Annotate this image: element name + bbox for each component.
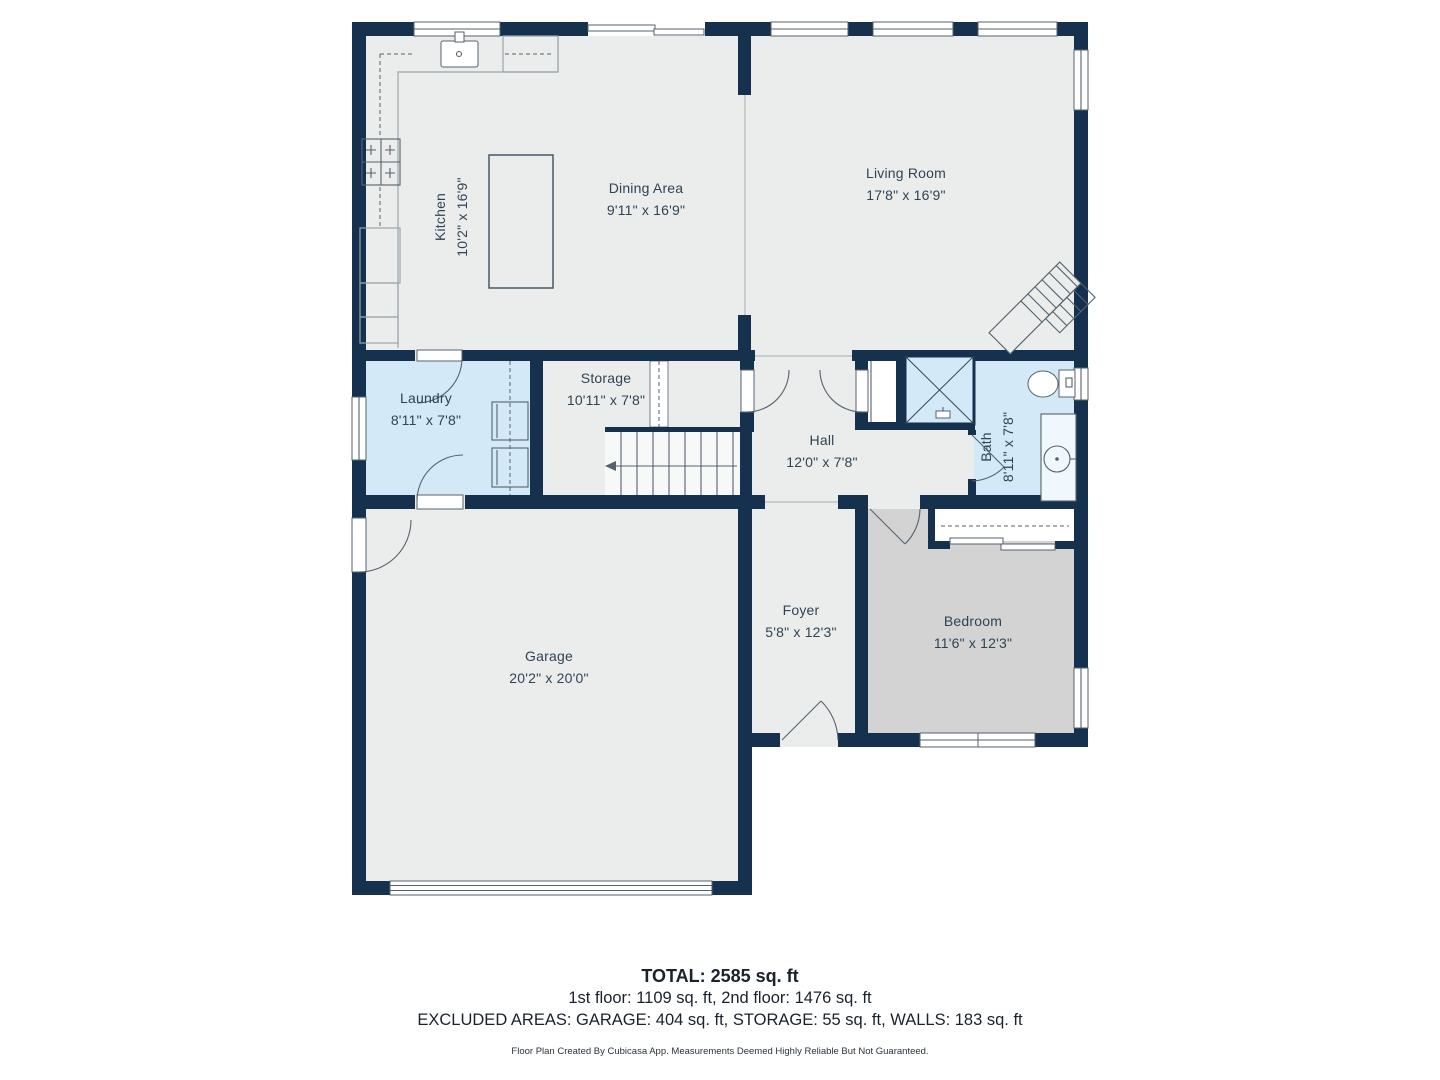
room-dims: 10'11" x 7'8" [567,389,645,411]
room-dims: 10'2" x 16'9" [451,177,473,256]
room-dims: 5'8" x 12'3" [765,621,836,643]
room-label-foyer: Foyer 5'8" x 12'3" [765,599,836,643]
room-name: Foyer [765,599,836,621]
floor-plan-drawing [0,0,1440,1080]
bedroom-closet-floor [935,509,1074,541]
room-name: Storage [567,367,645,389]
room-label-bath: Bath 8'11" x 7'8" [975,412,1019,482]
room-label-kitchen: Kitchen 10'2" x 16'9" [429,177,473,256]
room-dims: 8'11" x 7'8" [391,409,461,431]
window-icon [1074,50,1088,110]
garage-door-icon [390,881,712,895]
room-name: Bedroom [934,610,1012,632]
disclaimer-text: Floor Plan Created By Cubicasa App. Meas… [0,1046,1440,1057]
window-icon [978,22,1057,36]
room-name: Laundry [391,387,461,409]
room-dims: 12'0" x 7'8" [786,451,857,473]
window-icon [920,733,978,747]
room-name: Hall [786,429,857,451]
stair-top-edge [605,427,748,432]
window-icon [1074,368,1088,400]
room-dims: 9'11" x 16'9" [607,199,685,221]
room-label-storage: Storage 10'11" x 7'8" [567,367,645,411]
shower-icon [905,356,974,424]
room-dims: 17'8" x 16'9" [866,184,946,206]
window-icon [771,22,848,36]
stairs-floor [605,432,748,495]
room-name: Living Room [866,162,946,184]
window-icon [978,733,1035,747]
room-label-dining-area: Dining Area 9'11" x 16'9" [607,177,685,221]
room-label-garage: Garage 20'2" x 20'0" [509,645,588,689]
dining-living-divider [738,22,751,95]
floor-plan-page: Kitchen 10'2" x 16'9" Dining Area 9'11" … [0,0,1440,1080]
room-dims: 11'6" x 12'3" [934,632,1012,654]
window-icon [352,397,366,460]
room-dims: 8'11" x 7'8" [997,412,1019,482]
room-name: Dining Area [607,177,685,199]
room-label-living-room: Living Room 17'8" x 16'9" [866,162,946,206]
room-dims: 20'2" x 20'0" [509,667,588,689]
room-label-laundry: Laundry 8'11" x 7'8" [391,387,461,431]
summary-total: TOTAL: 2585 sq. ft [0,966,1440,987]
summary-floors: 1st floor: 1109 sq. ft, 2nd floor: 1476 … [0,989,1440,1008]
vanity-sink-icon [1041,414,1076,501]
room-label-bedroom: Bedroom 11'6" x 12'3" [934,610,1012,654]
room-name: Kitchen [429,177,451,256]
toilet-icon [1028,370,1075,397]
garage-floor [352,747,752,895]
room-label-hall: Hall 12'0" x 7'8" [786,429,857,473]
window-icon [873,22,953,36]
room-name: Bath [975,412,997,482]
window-icon [1074,668,1088,728]
room-name: Garage [509,645,588,667]
summary-excluded-areas: EXCLUDED AREAS: GARAGE: 404 sq. ft, STOR… [0,1011,1440,1030]
